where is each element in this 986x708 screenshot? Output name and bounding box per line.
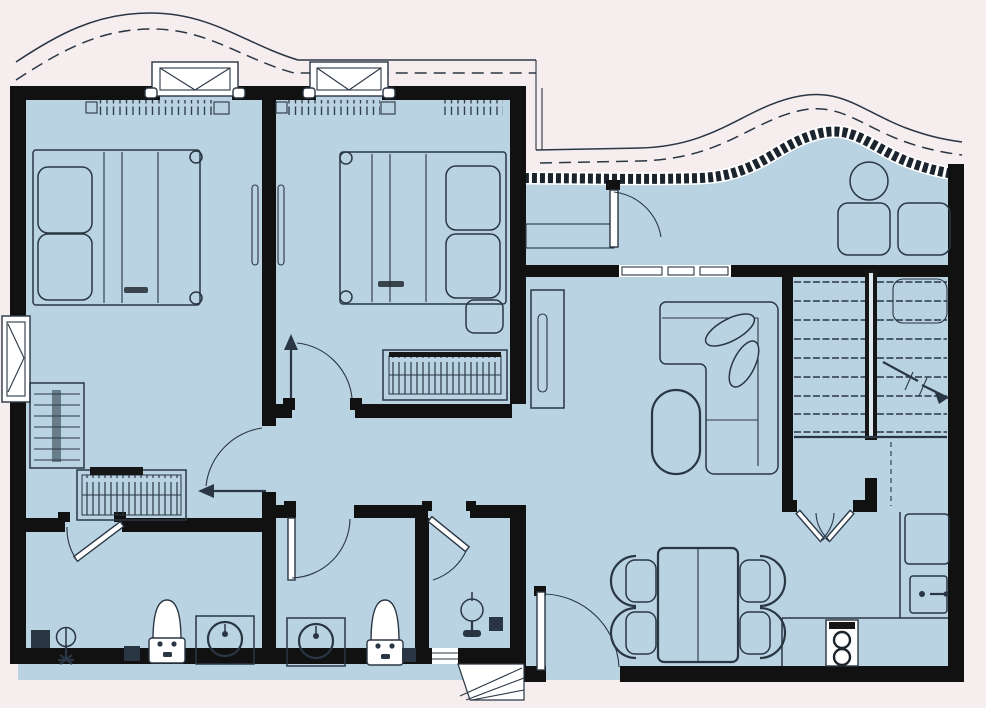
wardrobe-low-bedroom-1 bbox=[77, 467, 186, 520]
stove-icon bbox=[826, 620, 858, 666]
floor-drain bbox=[31, 630, 50, 648]
radiator-bedroom-2 bbox=[276, 100, 395, 115]
entry-steps bbox=[458, 664, 524, 700]
window-top-1 bbox=[145, 62, 245, 98]
floor-drain bbox=[489, 617, 503, 631]
floor-plan-page bbox=[0, 0, 986, 708]
window-left bbox=[2, 316, 30, 402]
floor-drain bbox=[124, 646, 140, 661]
radiator-bedroom-2b bbox=[443, 100, 503, 115]
window-top-2 bbox=[303, 62, 395, 98]
floor-plan-svg bbox=[0, 0, 986, 708]
radiator-bedroom-1 bbox=[86, 100, 229, 115]
dresser-bedroom-2 bbox=[383, 350, 507, 400]
floor-drain bbox=[402, 648, 416, 662]
window-wc bbox=[432, 648, 458, 664]
window-hall-partition bbox=[619, 265, 731, 277]
dimension-mark bbox=[378, 281, 404, 287]
dimension-mark bbox=[124, 287, 148, 293]
